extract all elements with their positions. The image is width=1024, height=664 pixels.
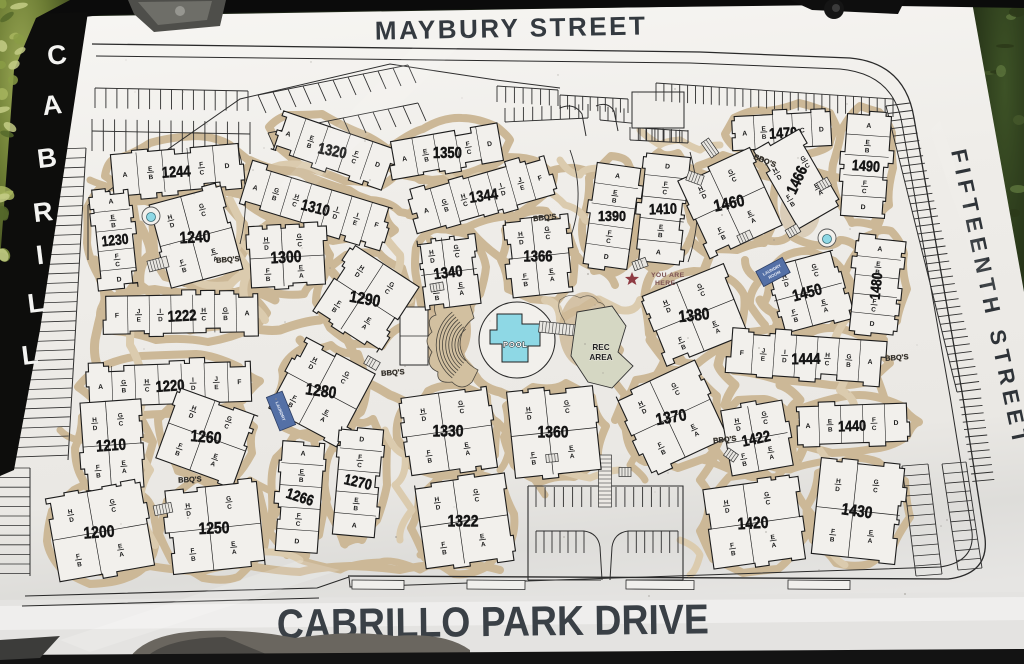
- svg-text:POOL: POOL: [503, 340, 528, 349]
- svg-text:BBQ'S: BBQ'S: [216, 254, 240, 265]
- svg-text:A: A: [300, 450, 305, 457]
- svg-text:BBQ'S: BBQ'S: [381, 367, 405, 378]
- svg-text:D: D: [294, 538, 299, 545]
- svg-text:C: C: [45, 39, 68, 71]
- svg-text:1340: 1340: [433, 263, 464, 283]
- svg-text:A: A: [742, 130, 747, 137]
- svg-text:C: C: [145, 387, 150, 394]
- svg-text:C: C: [296, 521, 301, 528]
- svg-text:A: A: [40, 89, 63, 121]
- svg-text:1390: 1390: [598, 208, 626, 225]
- svg-text:D: D: [158, 316, 163, 323]
- svg-text:HERE: HERE: [655, 280, 676, 287]
- svg-text:BBQ'S: BBQ'S: [178, 474, 202, 484]
- svg-text:D: D: [869, 321, 875, 328]
- svg-text:A: A: [299, 272, 304, 279]
- svg-text:F: F: [237, 379, 241, 386]
- svg-text:C: C: [824, 360, 829, 367]
- svg-text:C: C: [201, 315, 206, 322]
- svg-text:B: B: [121, 387, 126, 394]
- svg-text:B: B: [762, 134, 767, 141]
- svg-text:F: F: [115, 313, 119, 320]
- svg-text:D: D: [603, 254, 609, 262]
- svg-text:A: A: [98, 384, 103, 391]
- svg-text:B: B: [223, 315, 228, 322]
- svg-text:D: D: [819, 126, 824, 133]
- svg-text:1360: 1360: [538, 424, 569, 442]
- svg-text:D: D: [782, 357, 787, 364]
- svg-text:A: A: [866, 123, 871, 130]
- svg-text:B: B: [266, 276, 271, 283]
- svg-text:B: B: [865, 147, 870, 154]
- svg-text:R: R: [31, 196, 54, 228]
- svg-text:I: I: [159, 308, 161, 315]
- svg-text:1322: 1322: [448, 513, 479, 531]
- svg-text:1250: 1250: [198, 519, 230, 538]
- svg-text:1444: 1444: [791, 351, 821, 369]
- svg-text:D: D: [359, 436, 365, 443]
- svg-text:YOU ARE: YOU ARE: [651, 272, 685, 279]
- svg-text:B: B: [96, 472, 101, 479]
- svg-text:D: D: [191, 385, 196, 392]
- svg-text:D: D: [665, 163, 671, 170]
- svg-text:1260: 1260: [190, 427, 222, 448]
- svg-text:B: B: [299, 477, 304, 484]
- svg-text:J: J: [137, 308, 141, 315]
- svg-text:1240: 1240: [179, 228, 211, 248]
- svg-text:B: B: [35, 142, 58, 174]
- svg-text:A: A: [245, 310, 250, 317]
- svg-text:A: A: [122, 172, 128, 179]
- svg-text:1480: 1480: [868, 272, 887, 301]
- svg-text:1210: 1210: [96, 437, 127, 456]
- svg-text:D: D: [860, 204, 865, 211]
- svg-text:D: D: [116, 276, 122, 283]
- svg-text:D: D: [893, 420, 898, 427]
- svg-text:A: A: [877, 246, 883, 253]
- svg-text:REC: REC: [592, 343, 609, 352]
- svg-text:1230: 1230: [101, 232, 130, 251]
- svg-text:1410: 1410: [649, 201, 678, 219]
- svg-text:1366: 1366: [524, 249, 553, 266]
- svg-text:AREA: AREA: [589, 353, 612, 362]
- svg-text:B: B: [828, 426, 833, 433]
- svg-text:D: D: [93, 425, 98, 432]
- svg-text:A: A: [108, 198, 114, 205]
- svg-text:B: B: [846, 362, 851, 369]
- svg-text:A: A: [867, 359, 872, 366]
- svg-text:1222: 1222: [167, 307, 197, 325]
- svg-text:1330: 1330: [433, 423, 464, 441]
- svg-text:A: A: [351, 522, 357, 529]
- svg-text:1300: 1300: [270, 248, 302, 268]
- svg-text:1200: 1200: [83, 523, 115, 543]
- svg-text:C: C: [118, 420, 123, 427]
- svg-text:D: D: [264, 245, 269, 252]
- svg-text:A: A: [656, 249, 662, 256]
- svg-text:1440: 1440: [838, 418, 867, 436]
- svg-text:1380: 1380: [678, 305, 711, 326]
- svg-text:A: A: [122, 468, 127, 475]
- svg-text:F: F: [739, 350, 744, 357]
- svg-text:1420: 1420: [737, 514, 769, 534]
- svg-text:C: C: [872, 425, 877, 432]
- svg-text:C: C: [862, 188, 867, 195]
- svg-text:BBQ'S: BBQ'S: [885, 352, 909, 363]
- svg-text:1350: 1350: [433, 145, 462, 162]
- svg-text:1244: 1244: [161, 163, 191, 182]
- svg-text:A: A: [805, 423, 810, 430]
- svg-text:D: D: [224, 163, 230, 170]
- svg-text:1490: 1490: [851, 157, 880, 176]
- svg-text:A: A: [615, 173, 621, 181]
